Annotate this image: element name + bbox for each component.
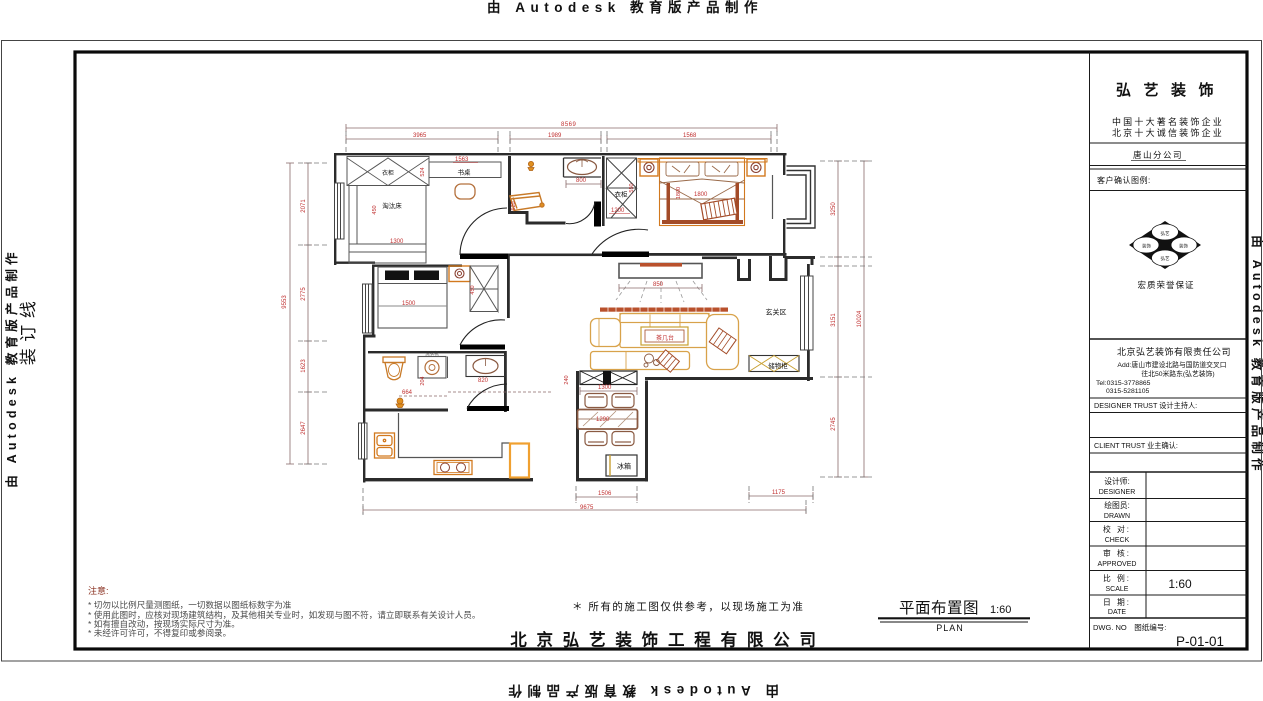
svg-text:设计师:: 设计师: [1104,476,1130,486]
svg-text:1800: 1800 [676,187,682,199]
svg-text:北京弘艺装饰工程有限公司: 北京弘艺装饰工程有限公司 [510,630,826,650]
svg-text:APPROVED: APPROVED [1098,561,1137,568]
svg-text:装饰: 装饰 [1142,243,1151,250]
svg-text:P-01-01: P-01-01 [1176,634,1224,649]
svg-text:1290: 1290 [596,417,610,423]
svg-text:1506: 1506 [598,491,612,497]
svg-text:装饰: 装饰 [1179,243,1188,250]
svg-text:1568: 1568 [683,133,697,139]
svg-text:校 对:: 校 对: [1103,524,1131,534]
svg-text:茶几台: 茶几台 [656,334,674,342]
svg-text:弘艺装饰: 弘艺装饰 [1116,81,1226,99]
svg-text:DESIGNER TRUST 设计主持人:: DESIGNER TRUST 设计主持人: [1094,401,1197,410]
svg-text:1623: 1623 [301,359,307,373]
svg-text:9675: 9675 [580,505,594,511]
svg-text:北京十大诚信装饰企业: 北京十大诚信装饰企业 [1112,127,1224,138]
svg-text:装订线: 装订线 [19,295,38,366]
svg-text:1800: 1800 [694,192,708,198]
svg-text:日 期:: 日 期: [1103,598,1131,607]
svg-text:0315-5281105: 0315-5281105 [1106,388,1150,395]
svg-text:＊ 所有的施工图仅供参考，以现场施工为准: ＊ 所有的施工图仅供参考，以现场施工为准 [572,600,804,613]
svg-text:客户确认图例:: 客户确认图例: [1097,175,1151,185]
svg-text:2071: 2071 [301,199,307,213]
svg-text:8569: 8569 [561,122,577,128]
svg-text:CLIENT TRUST 业主确认:: CLIENT TRUST 业主确认: [1094,441,1178,450]
svg-text:洗衣机: 洗衣机 [425,350,439,357]
svg-text:1500: 1500 [402,301,416,307]
svg-text:1175: 1175 [772,490,786,496]
svg-text:820: 820 [478,378,489,384]
svg-text:800: 800 [576,178,587,184]
svg-text:弘艺: 弘艺 [1161,255,1170,262]
svg-text:1300: 1300 [390,239,404,245]
svg-text:冰箱: 冰箱 [617,462,631,471]
svg-text:850: 850 [653,282,664,288]
svg-text:DWG. NO 图纸编号:: DWG. NO 图纸编号: [1093,622,1166,632]
svg-text:宏质荣誉保证: 宏质荣誉保证 [1137,280,1194,290]
svg-text:北京弘艺装饰有限责任公司: 北京弘艺装饰有限责任公司 [1117,346,1231,357]
svg-text:2745: 2745 [831,417,837,431]
svg-text:1200: 1200 [611,208,625,214]
svg-text:由 Autodesk 教育版产品制作: 由 Autodesk 教育版产品制作 [4,248,19,488]
svg-text:由 Autodesk 教育版产品制作: 由 Autodesk 教育版产品制作 [503,683,779,699]
svg-text:1563: 1563 [455,157,469,163]
svg-text:CHECK: CHECK [1105,537,1130,544]
svg-text:3250: 3250 [831,202,837,216]
svg-text:弘艺: 弘艺 [1161,230,1170,237]
svg-text:664: 664 [402,390,413,396]
svg-text:注意:: 注意: [88,585,109,596]
svg-text:204: 204 [420,376,426,385]
svg-text:524: 524 [420,167,426,176]
svg-text:1989: 1989 [548,133,562,139]
svg-text:* 未经许可许可，不得复印或参阅录。: * 未经许可许可，不得复印或参阅录。 [88,627,231,638]
svg-text:往北50米路东(弘艺装饰): 往北50米路东(弘艺装饰) [1141,369,1214,378]
svg-text:储物柜: 储物柜 [768,361,788,370]
svg-text:Add:唐山市建设北路与国防道交叉口: Add:唐山市建设北路与国防道交叉口 [1117,360,1226,369]
svg-text:SCALE: SCALE [1106,586,1129,593]
svg-text:中国十大著名装饰企业: 中国十大著名装饰企业 [1112,116,1224,127]
svg-text:DATE: DATE [1108,609,1126,616]
svg-text:绘图员:: 绘图员: [1104,500,1130,510]
svg-text:平面布置图: 平面布置图 [899,599,979,617]
svg-text:比 例:: 比 例: [1103,573,1131,583]
svg-text:由 Autodesk 教育版产品制作: 由 Autodesk 教育版产品制作 [487,0,763,15]
svg-text:240: 240 [564,375,570,384]
svg-text:淘汰床: 淘汰床 [382,201,402,210]
svg-text:450: 450 [372,205,378,214]
svg-text:1300: 1300 [598,385,612,391]
svg-text:550: 550 [629,183,635,192]
svg-text:10024: 10024 [857,310,863,327]
svg-text:PLAN: PLAN [936,623,964,633]
svg-text:1:60: 1:60 [990,604,1011,616]
svg-text:唐山分公司: 唐山分公司 [1133,150,1183,160]
svg-text:Tel:0315-3778865: Tel:0315-3778865 [1096,380,1151,387]
svg-text:450: 450 [470,285,476,294]
svg-text:书桌: 书桌 [458,168,472,177]
svg-text:DRAWN: DRAWN [1104,513,1130,520]
svg-text:1:60: 1:60 [1168,577,1192,591]
svg-text:2775: 2775 [301,287,307,301]
svg-text:DESIGNER: DESIGNER [1099,489,1136,496]
svg-text:衣柜: 衣柜 [382,169,394,177]
svg-text:衣柜: 衣柜 [615,190,629,199]
svg-text:520: 520 [511,201,517,210]
svg-text:2647: 2647 [301,421,307,435]
svg-text:审 核:: 审 核: [1103,548,1131,558]
svg-text:* 切勿以比例尺量测图纸，一切数据以图纸标数字为准: * 切勿以比例尺量测图纸，一切数据以图纸标数字为准 [88,599,292,610]
svg-text:3151: 3151 [831,313,837,327]
svg-text:9553: 9553 [282,295,288,309]
svg-text:3965: 3965 [413,133,427,139]
svg-text:玄关区: 玄关区 [766,308,787,317]
